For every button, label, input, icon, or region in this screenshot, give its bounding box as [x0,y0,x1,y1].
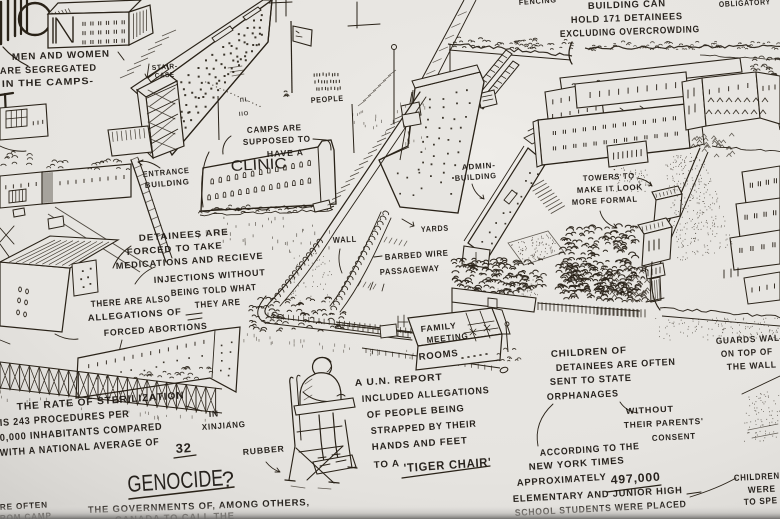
svg-text:32: 32 [175,440,192,456]
svg-text:YARDS: YARDS [421,224,449,234]
svg-text:CASE: CASE [155,72,175,80]
svg-text:IIO: IIO [239,111,250,118]
svg-text:WALL: WALL [333,234,357,245]
svg-text:TO A: TO A [373,458,400,471]
svg-text:IIL: IIL [240,97,250,104]
svg-text:IN: IN [208,408,219,419]
svg-text:CLINIC: CLINIC [230,155,287,175]
svg-text:WERE: WERE [748,484,776,495]
